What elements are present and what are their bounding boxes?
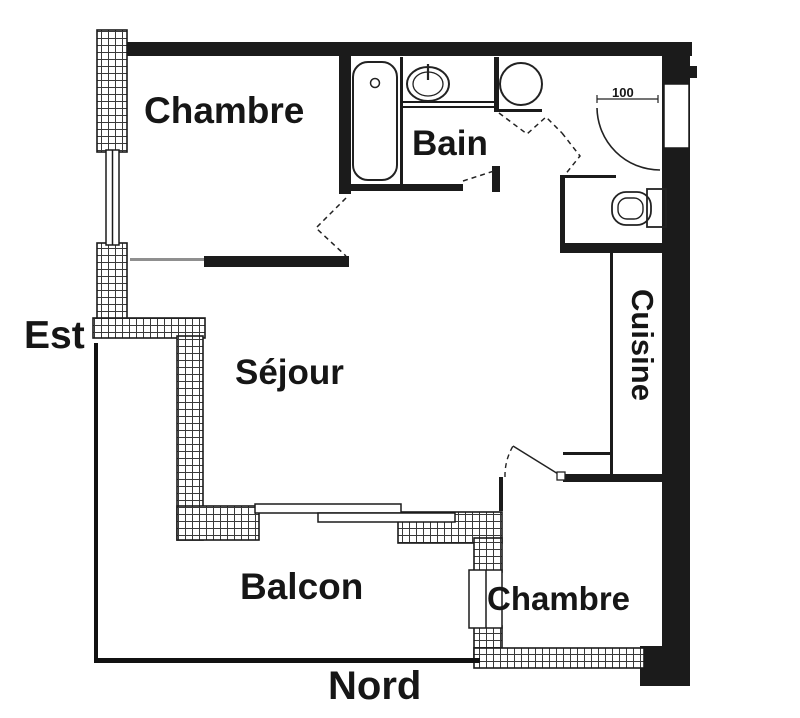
washbasin-icon [407, 64, 449, 101]
sliding-door-panel-1-icon [255, 504, 401, 513]
chambre-nw-door-sill [130, 258, 204, 261]
room-label-sejour: Séjour [235, 355, 344, 390]
bathtub-icon [353, 62, 397, 180]
top-wall [98, 42, 692, 56]
floorplan-page: Chambre Bain Séjour Cuisine Balcon Chamb… [0, 0, 800, 718]
orientation-label-est: Est [24, 316, 85, 355]
sejour-east-wall-stub [499, 477, 503, 511]
chambre-nw-south-wall [204, 256, 349, 267]
chambre-se-west-wall-upper [474, 538, 502, 572]
vanity-counter-line-2 [403, 106, 495, 108]
balcony-rail-south [94, 658, 480, 663]
entry-door-panel-icon [664, 84, 689, 148]
room-label-balcon: Balcon [240, 568, 363, 605]
door-hinge-nub [687, 66, 697, 78]
wc-south-wall [560, 243, 662, 253]
orientation-label-nord: Nord [328, 666, 421, 706]
closet-passage-mark [499, 113, 562, 134]
heater-closet-west-wall [494, 57, 499, 112]
bain-doorway-mark [463, 171, 494, 181]
wc-west-wall [560, 176, 565, 243]
doors [316, 66, 697, 480]
bedroom-door-swing-icon [505, 446, 565, 480]
floorplan-svg [0, 0, 800, 718]
cuisine-counter-line [610, 253, 613, 477]
room-label-cuisine: Cuisine [627, 289, 658, 401]
entry-door-width-label: 100 [612, 86, 634, 99]
room-label-chambre-nw: Chambre [144, 92, 304, 129]
room-label-chambre-se: Chambre [487, 582, 630, 615]
hall-passage-mark [562, 133, 580, 176]
chambre-se-south-wall [474, 648, 644, 668]
balcony-rail-west [94, 343, 98, 663]
heater-closet-south-wall [494, 109, 542, 112]
chambre-nw-east-wall [339, 54, 351, 194]
east-facade-wall [93, 318, 205, 338]
cuisine-counter-end [563, 452, 611, 455]
toilet-icon [612, 189, 666, 227]
bain-south-wall [345, 184, 463, 191]
vanity-counter-line-1 [403, 101, 495, 103]
sejour-south-wall-left [177, 506, 259, 540]
wc-north-wall [560, 175, 616, 178]
chambre-nw-doorway-mark [316, 198, 346, 256]
water-heater-icon [500, 63, 542, 105]
bain-corner-wall [492, 166, 500, 192]
bathtub-partition [400, 57, 403, 191]
chambre-nw-west-wall-upper [97, 30, 127, 152]
sliding-door-panel-2-icon [318, 513, 455, 522]
chambre-se-north-wall [563, 474, 662, 482]
room-label-bain: Bain [412, 126, 488, 161]
bottom-right-corner-wall [640, 646, 690, 686]
